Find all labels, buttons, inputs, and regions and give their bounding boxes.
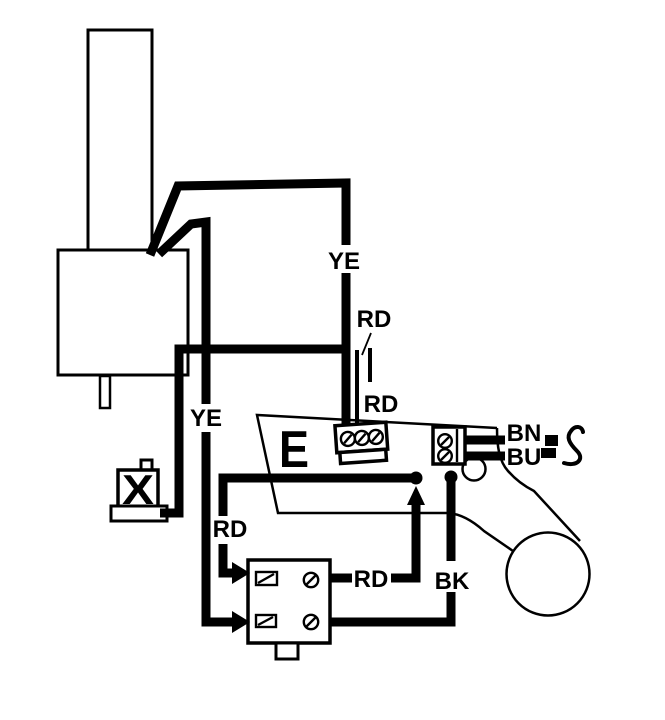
rd-label-stub: RD	[364, 391, 399, 418]
e-module-label: E	[279, 421, 309, 479]
wire-rd-bus-top	[223, 478, 416, 516]
ye-label-riser: YE	[328, 248, 360, 275]
cable-ends	[541, 427, 583, 464]
bn-wire-end-square	[545, 435, 558, 446]
control-unit-pin	[100, 376, 110, 408]
wiring-diagram-page: X YE RD RD YE RD RD	[0, 0, 665, 720]
wiring-diagram: X YE RD RD YE RD RD	[0, 0, 665, 720]
arrow-up-icon	[407, 486, 425, 505]
control-unit-box	[58, 250, 188, 375]
rd-label-callout: RD	[357, 306, 392, 333]
wire-end-dot	[410, 472, 423, 485]
wire-rd-bus-bottom	[223, 544, 233, 573]
cable-curl-icon	[564, 427, 583, 464]
rd-label-branch: RD	[213, 516, 248, 543]
connector-block-tab	[276, 643, 298, 659]
wire-bk-bottom	[330, 592, 451, 622]
terminal-block-3pole-lip	[340, 449, 387, 463]
bn-label: BN	[507, 420, 542, 447]
wire-ye-riser-top	[150, 183, 346, 255]
motor-circle	[507, 533, 590, 616]
x-solenoid: X	[111, 460, 167, 521]
bu-wire-end-square	[541, 448, 556, 458]
bk-label: BK	[435, 568, 470, 595]
terminal-block-2pole	[433, 427, 465, 464]
rd-label-jumper: RD	[354, 566, 389, 593]
bu-label: BU	[507, 444, 542, 471]
terminal-block-3pole	[335, 422, 389, 463]
x-solenoid-label: X	[122, 466, 154, 513]
wire-end-dot	[445, 471, 458, 484]
heater-column	[88, 30, 152, 250]
connector-block	[248, 560, 330, 659]
ye-label-left: YE	[190, 405, 222, 432]
